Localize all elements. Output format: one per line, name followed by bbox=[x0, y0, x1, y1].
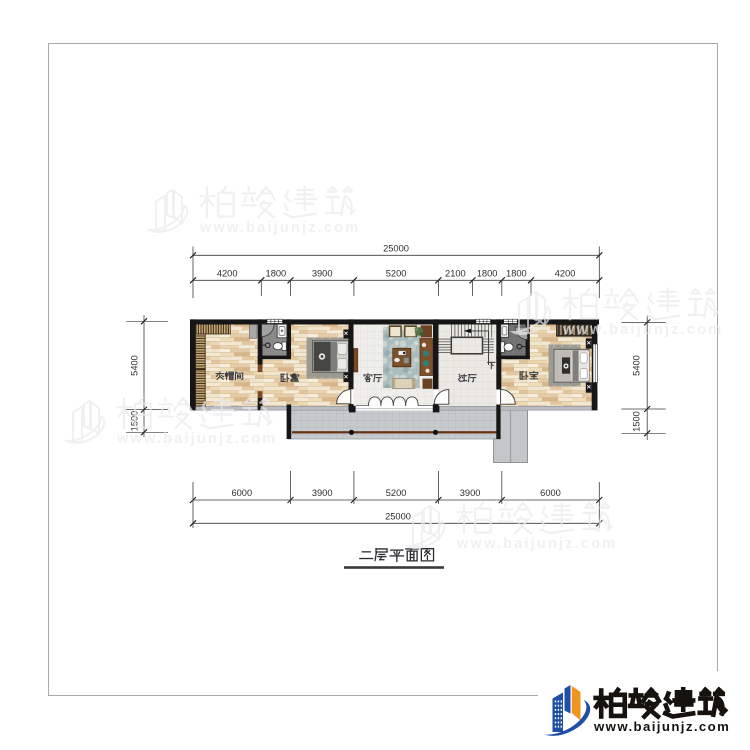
svg-text:1500: 1500 bbox=[632, 411, 642, 432]
svg-text:www.baijunjz.com: www.baijunjz.com bbox=[199, 220, 360, 236]
svg-text:1800: 1800 bbox=[506, 268, 527, 278]
svg-text:5200: 5200 bbox=[386, 268, 407, 278]
svg-text:1800: 1800 bbox=[266, 268, 287, 278]
svg-text:www.baijunjz.com: www.baijunjz.com bbox=[116, 431, 277, 447]
svg-text:4200: 4200 bbox=[555, 268, 576, 278]
svg-text:5400: 5400 bbox=[130, 355, 140, 376]
svg-text:www.baijunjz.com: www.baijunjz.com bbox=[562, 322, 723, 338]
svg-text:3900: 3900 bbox=[312, 268, 333, 278]
svg-text:3900: 3900 bbox=[460, 488, 481, 498]
svg-text:6000: 6000 bbox=[231, 488, 252, 498]
svg-text:1800: 1800 bbox=[477, 268, 498, 278]
svg-text:5200: 5200 bbox=[386, 488, 407, 498]
svg-text:2100: 2100 bbox=[445, 268, 466, 278]
svg-text:4200: 4200 bbox=[217, 268, 238, 278]
svg-text:6000: 6000 bbox=[540, 488, 561, 498]
svg-text:www.baijunjz.com: www.baijunjz.com bbox=[593, 719, 730, 734]
svg-text:25000: 25000 bbox=[385, 511, 411, 521]
svg-text:25000: 25000 bbox=[383, 244, 409, 254]
svg-text:3900: 3900 bbox=[312, 488, 333, 498]
svg-text:www.baijunjz.com: www.baijunjz.com bbox=[456, 536, 617, 552]
svg-text:5400: 5400 bbox=[632, 355, 642, 376]
